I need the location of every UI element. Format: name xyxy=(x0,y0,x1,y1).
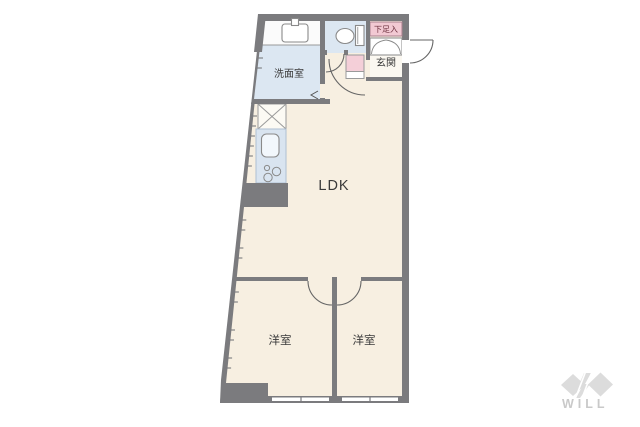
label-entrance: 玄関 xyxy=(376,56,396,69)
step-bottom-left xyxy=(220,383,267,403)
pillar-ldk xyxy=(241,183,288,207)
logo-text: WILL xyxy=(562,397,609,411)
label-bedroom-left: 洋室 xyxy=(269,333,292,347)
wall-under-toilet-left xyxy=(320,50,327,55)
logo-diamond-right xyxy=(588,373,613,397)
refrigerator-space xyxy=(258,104,286,129)
wall-bedroom-partition xyxy=(332,281,337,396)
label-washroom: 洗面室 xyxy=(274,67,304,80)
entrance-door-arc xyxy=(410,40,433,63)
shoe-cabinet xyxy=(370,38,402,55)
label-shoe-storage: 下足入 xyxy=(374,25,398,34)
wall-toilet-genkan xyxy=(366,21,370,60)
wall-under-genkan xyxy=(366,77,409,81)
wall-ldk-bedrooms-right xyxy=(361,277,402,281)
wall-ldk-bedrooms-left xyxy=(236,277,308,281)
window-bedroom-right xyxy=(342,396,398,403)
wall-under-toilet-right xyxy=(344,50,348,55)
kitchen-sink-icon xyxy=(262,134,280,157)
label-bedroom-right: 洋室 xyxy=(353,333,376,347)
hall-storage-shelf xyxy=(346,72,364,79)
hall-storage-pink xyxy=(346,55,364,72)
washroom-door-gap xyxy=(320,84,325,98)
wall-under-washroom xyxy=(251,99,330,104)
floor-plan: LDK 洗面室 玄関 下足入 洋室 洋室 WILL xyxy=(0,0,640,427)
wall-ldk-bedrooms-mid xyxy=(332,277,337,281)
entrance-door-opening xyxy=(402,40,410,63)
floor-plan-page: LDK 洗面室 玄関 下足入 洋室 洋室 WILL xyxy=(0,0,640,427)
will-logo: WILL xyxy=(561,372,613,411)
window-bedroom-left xyxy=(272,396,329,403)
label-ldk: LDK xyxy=(318,178,349,194)
entrance-door xyxy=(410,40,433,63)
